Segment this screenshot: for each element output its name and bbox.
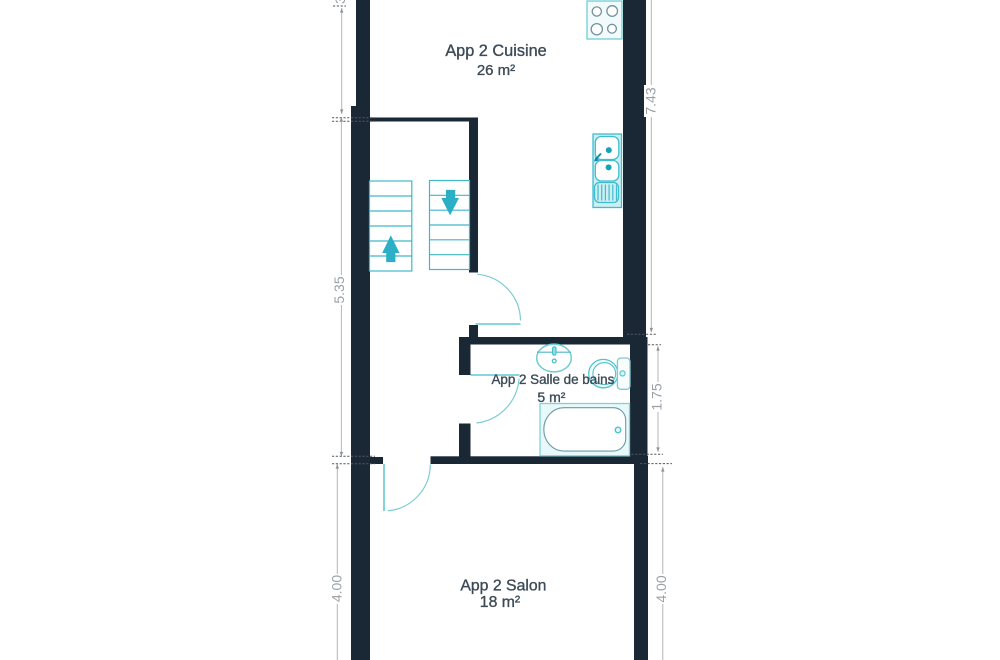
svg-text:3: 3 <box>332 0 348 4</box>
svg-text:4.00: 4.00 <box>328 575 344 602</box>
svg-text:4.00: 4.00 <box>653 575 669 602</box>
svg-text:1.75: 1.75 <box>648 383 664 410</box>
svg-text:26 m²: 26 m² <box>477 62 515 79</box>
svg-text:App 2 Cuisine: App 2 Cuisine <box>445 42 546 60</box>
svg-text:7.43: 7.43 <box>642 87 658 114</box>
svg-text:5.35: 5.35 <box>331 276 347 303</box>
svg-text:18 m²: 18 m² <box>480 594 520 611</box>
svg-text:App 2 Salle de bains: App 2 Salle de bains <box>491 372 614 387</box>
svg-text:App 2 Salon: App 2 Salon <box>460 577 546 594</box>
svg-text:5 m²: 5 m² <box>537 389 565 405</box>
